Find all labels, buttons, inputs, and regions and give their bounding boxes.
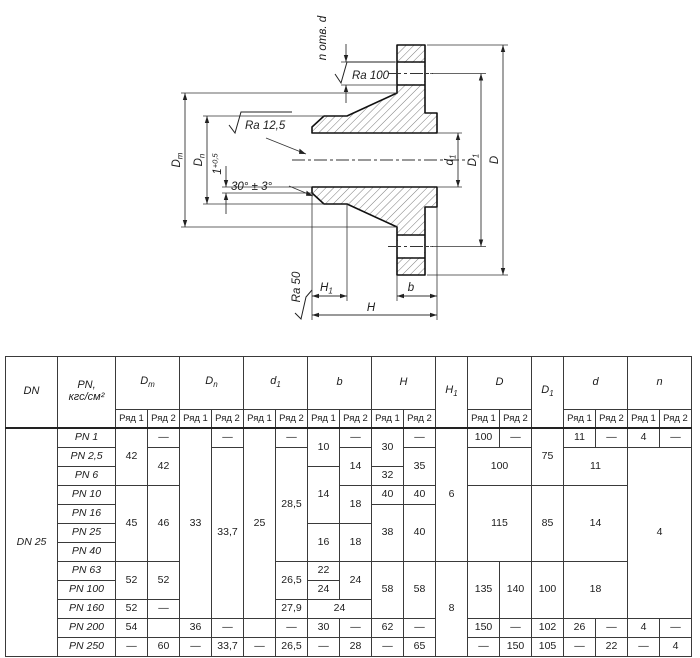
dim-label-b: b	[408, 282, 415, 294]
table-cell: 100	[468, 428, 500, 448]
table-cell: —	[276, 428, 308, 448]
dim-label-land: 1+0,5	[211, 153, 225, 175]
table-cell: 58	[372, 562, 404, 619]
table-cell: 52	[116, 562, 148, 600]
col-subheader-Dn-2: Ряд 2	[212, 410, 244, 429]
table-cell: 4	[660, 638, 692, 657]
table-cell: 26,5	[276, 562, 308, 600]
col-header-D: D	[468, 357, 532, 410]
col-header-Dn: Dn	[180, 357, 244, 410]
col-header-D1: D1	[532, 357, 564, 429]
row-label-pn: PN 10	[58, 486, 116, 505]
col-subheader-b-1: Ряд 1	[308, 410, 340, 429]
col-subheader-Dm-1: Ряд 1	[116, 410, 148, 429]
table-cell: 105	[532, 638, 564, 657]
col-subheader-D-2: Ряд 2	[500, 410, 532, 429]
table-cell: 25	[244, 428, 276, 619]
table-cell: 100	[532, 562, 564, 619]
dim-label-D1: D1	[467, 154, 481, 167]
table-cell: 14	[564, 486, 628, 562]
row-label-pn: PN 6	[58, 467, 116, 486]
col-header-pn: PN,кгс/см²	[58, 357, 116, 429]
col-subheader-H-2: Ряд 2	[404, 410, 436, 429]
row-label-pn: PN 2,5	[58, 448, 116, 467]
table-cell: 30	[372, 428, 404, 467]
table-cell	[244, 619, 276, 638]
table-cell: 140	[500, 562, 532, 619]
table-cell: —	[404, 428, 436, 448]
table-cell: —	[308, 638, 340, 657]
roughness-top-label: Ra 100	[352, 70, 390, 82]
flange-drawing: n отв. d Ra 100 Ra 12,5 Ra 50 30° ± 3° D…	[0, 0, 700, 350]
table-cell: 14	[308, 467, 340, 524]
col-subheader-d-2: Ряд 2	[596, 410, 628, 429]
table-cell: 4	[628, 428, 660, 448]
dim-label-H: H	[367, 302, 376, 314]
table-cell: —	[660, 428, 692, 448]
table-cell: 38	[372, 505, 404, 562]
table-cell: 33	[180, 428, 212, 619]
row-label-pn: PN 200	[58, 619, 116, 638]
col-subheader-H-1: Ряд 1	[372, 410, 404, 429]
table-cell: —	[564, 638, 596, 657]
table-cell: 11	[564, 448, 628, 486]
table-cell: 65	[404, 638, 436, 657]
table-cell: —	[212, 619, 244, 638]
col-header-H: H	[372, 357, 436, 410]
table-cell: 26	[564, 619, 596, 638]
table-cell: 40	[404, 505, 436, 562]
table-cell: 40	[372, 486, 404, 505]
table-cell: —	[372, 638, 404, 657]
table-cell: 62	[372, 619, 404, 638]
table-cell: 102	[532, 619, 564, 638]
table-cell: 35	[404, 448, 436, 486]
table-cell: 24	[340, 562, 372, 600]
table-cell: —	[468, 638, 500, 657]
table-cell: —	[148, 600, 180, 619]
table-cell: 26,5	[276, 638, 308, 657]
table-cell: —	[340, 428, 372, 448]
row-label-pn: PN 63	[58, 562, 116, 581]
col-subheader-D-1: Ряд 1	[468, 410, 500, 429]
dim-label-dm: Dm	[171, 152, 185, 167]
table-cell: —	[660, 619, 692, 638]
table-cell: 60	[148, 638, 180, 657]
table-cell: 14	[340, 448, 372, 486]
col-subheader-d-1: Ряд 1	[564, 410, 596, 429]
n-holes-label: n отв. d	[317, 15, 329, 60]
table-cell: 75	[532, 428, 564, 486]
row-label-pn: PN 25	[58, 524, 116, 543]
table-cell	[148, 619, 180, 638]
table-cell: 42	[116, 428, 148, 486]
table-cell: —	[116, 638, 148, 657]
table-cell: 22	[308, 562, 340, 581]
table-cell: 58	[404, 562, 436, 619]
dim-label-D: D	[489, 156, 501, 164]
col-subheader-n-1: Ряд 1	[628, 410, 660, 429]
dimension-table: DNPN,кгс/см²DmDnd1bHH1DD1dnРяд 1Ряд 2Ряд…	[5, 356, 692, 657]
table-cell: —	[180, 638, 212, 657]
angle-note: 30° ± 3°	[231, 181, 272, 193]
col-header-d1: d1	[244, 357, 308, 410]
table-cell: —	[596, 619, 628, 638]
col-subheader-d1-1: Ряд 1	[244, 410, 276, 429]
table-cell: 42	[148, 448, 180, 486]
col-subheader-Dn-1: Ряд 1	[180, 410, 212, 429]
page: n отв. d Ra 100 Ra 12,5 Ra 50 30° ± 3° D…	[0, 0, 700, 658]
table-cell: —	[404, 619, 436, 638]
table-cell: 46	[148, 486, 180, 562]
table-cell: 54	[116, 619, 148, 638]
table-cell: 33,7	[212, 638, 244, 657]
table-cell: 30	[308, 619, 340, 638]
table-cell: 52	[116, 600, 148, 619]
table-cell: 45	[116, 486, 148, 562]
row-label-pn: PN 40	[58, 543, 116, 562]
table-cell: —	[276, 619, 308, 638]
table-cell: —	[628, 638, 660, 657]
table-cell: 28,5	[276, 448, 308, 562]
col-header-dn: DN	[6, 357, 58, 429]
table-cell: 4	[628, 619, 660, 638]
table-cell: 18	[564, 562, 628, 619]
col-subheader-d1-2: Ряд 2	[276, 410, 308, 429]
table-cell: 18	[340, 524, 372, 562]
dim-label-H1: H1	[320, 282, 333, 296]
dim-label-dn: Dn	[193, 153, 207, 166]
col-subheader-n-2: Ряд 2	[660, 410, 692, 429]
table-cell: —	[500, 428, 532, 448]
flange-section-lower	[312, 187, 437, 275]
table-cell: 28	[340, 638, 372, 657]
col-subheader-Dm-2: Ряд 2	[148, 410, 180, 429]
row-label-pn: PN 250	[58, 638, 116, 657]
table-cell: 11	[564, 428, 596, 448]
table-cell: —	[212, 428, 244, 448]
table-cell: 24	[308, 600, 372, 619]
row-label-pn: PN 100	[58, 581, 116, 600]
table-cell: 24	[308, 581, 340, 600]
table-cell: 85	[532, 486, 564, 562]
table-cell: 150	[468, 619, 500, 638]
table-cell: 8	[436, 562, 468, 657]
table-cell: 4	[628, 448, 692, 619]
table-cell: 135	[468, 562, 500, 619]
col-header-Dm: Dm	[116, 357, 180, 410]
table-cell: 40	[404, 486, 436, 505]
table-cell: 100	[468, 448, 532, 486]
col-header-n: n	[628, 357, 692, 410]
roughness-mid-label: Ra 12,5	[245, 120, 286, 132]
col-header-H1: H1	[436, 357, 468, 429]
table-cell: 27,9	[276, 600, 308, 619]
table-cell: 52	[148, 562, 180, 600]
table-cell: 16	[308, 524, 340, 562]
dn-cell: DN 25	[6, 428, 58, 657]
row-label-pn: PN 16	[58, 505, 116, 524]
table-cell: 32	[372, 467, 404, 486]
table-cell: —	[148, 428, 180, 448]
row-label-pn: PN 160	[58, 600, 116, 619]
row-label-pn: PN 1	[58, 428, 116, 448]
table-cell: 10	[308, 428, 340, 467]
table-cell: —	[596, 428, 628, 448]
table-cell: 18	[340, 486, 372, 524]
table-cell: —	[244, 638, 276, 657]
col-header-d: d	[564, 357, 628, 410]
table-cell: —	[340, 619, 372, 638]
table-cell: 115	[468, 486, 532, 562]
col-header-b: b	[308, 357, 372, 410]
roughness-bottom-label: Ra 50	[291, 271, 303, 302]
table-cell: 36	[180, 619, 212, 638]
dimension-table-wrap: DNPN,кгс/см²DmDnd1bHH1DD1dnРяд 1Ряд 2Ряд…	[5, 356, 692, 657]
table-cell: 6	[436, 428, 468, 562]
table-cell: 33,7	[212, 448, 244, 619]
col-subheader-b-2: Ряд 2	[340, 410, 372, 429]
table-cell: 150	[500, 638, 532, 657]
table-cell: —	[500, 619, 532, 638]
dim-label-d1: d1	[444, 155, 458, 166]
flange-section-upper	[312, 45, 437, 133]
table-cell: 22	[596, 638, 628, 657]
